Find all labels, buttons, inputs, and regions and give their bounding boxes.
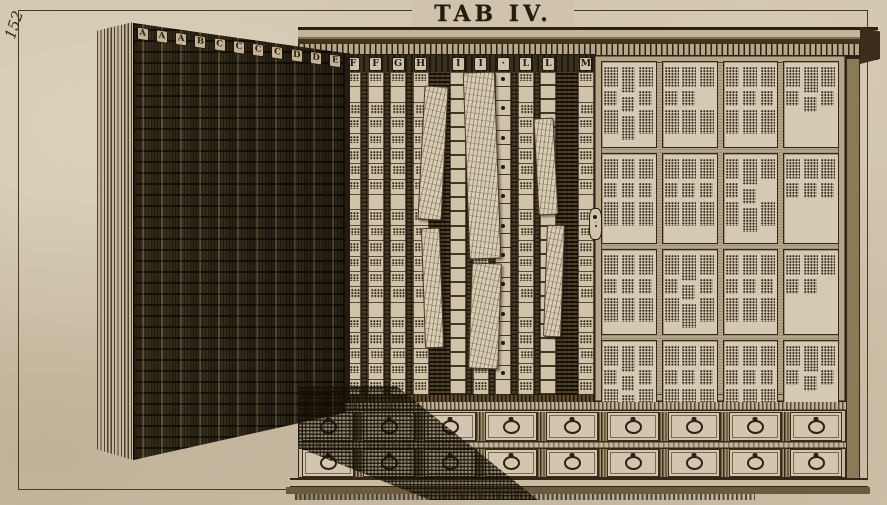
pane xyxy=(783,153,839,244)
pane-text-block xyxy=(726,183,739,198)
cabinet-interior: FFGHII·LLM xyxy=(345,55,594,402)
pane-text-column xyxy=(682,253,697,331)
cornice-right-return xyxy=(860,27,880,64)
pane-text-block xyxy=(622,202,636,226)
pane-text-column xyxy=(622,253,637,331)
drawer xyxy=(485,412,537,441)
pane-text-block xyxy=(761,91,774,106)
pane-text-block xyxy=(700,110,714,134)
pane-text-column xyxy=(604,65,619,144)
door-letter: C xyxy=(234,41,244,53)
door-letter-slot: E xyxy=(326,52,345,70)
pane-text-block xyxy=(604,279,617,294)
pane-text-column xyxy=(743,65,758,144)
pane-text-block xyxy=(726,159,740,179)
drawer-pull-icon xyxy=(503,420,520,434)
pane-text-column xyxy=(604,157,619,240)
pane-text-block xyxy=(622,97,635,112)
drawer xyxy=(546,449,598,477)
pane-text-block xyxy=(639,370,652,385)
cabinet-right-side xyxy=(846,58,860,482)
drawer-divider xyxy=(598,412,607,441)
drawer xyxy=(668,449,720,477)
drawer-pull-icon xyxy=(808,456,825,470)
door-letter-slot: A xyxy=(152,28,171,46)
pane-text-column xyxy=(786,65,801,144)
pane-text-column xyxy=(700,65,715,144)
pane-text-block xyxy=(700,159,714,179)
pane-text-column xyxy=(665,253,680,331)
pane-text-block xyxy=(639,279,652,294)
door-letter-slot: D xyxy=(287,47,306,65)
pane-text-block xyxy=(821,67,835,87)
door-letter-slot: C xyxy=(249,41,268,59)
pane-text-block xyxy=(700,67,714,87)
pane-text-block xyxy=(786,183,799,198)
drawer-pull-icon xyxy=(686,420,703,434)
door-letter: A xyxy=(157,30,167,42)
base-molding xyxy=(286,487,870,494)
drawer-pull-icon xyxy=(625,420,642,434)
pane xyxy=(662,153,718,244)
door-letter-slot: A xyxy=(172,30,191,48)
pane-text-column xyxy=(761,157,776,240)
drawer xyxy=(790,449,842,477)
pane-text-block xyxy=(804,255,818,275)
door-letter-slot: C xyxy=(229,39,248,57)
pane-text-block xyxy=(665,202,679,226)
pane-text-block xyxy=(604,67,618,87)
pane-text-block xyxy=(622,279,635,294)
pane-text-block xyxy=(665,346,679,366)
pane-text-block xyxy=(743,67,757,87)
pane-text-block xyxy=(786,91,799,106)
pane-grid xyxy=(601,61,839,396)
drawer-divider xyxy=(659,412,668,441)
pane-text-block xyxy=(804,346,818,372)
pane-text-column xyxy=(821,157,836,240)
pane-text-column xyxy=(682,157,697,240)
pane-text-column xyxy=(761,253,776,331)
door-letter-slot: B xyxy=(191,33,210,51)
pane-text-column xyxy=(665,157,680,240)
pane-text-column xyxy=(804,253,819,331)
specimen-sheet xyxy=(543,225,565,338)
pane-text-block xyxy=(622,298,636,322)
pane-text-block xyxy=(665,183,678,198)
pane-text-column xyxy=(804,157,819,240)
pane xyxy=(662,249,718,335)
pane-text-block xyxy=(622,183,635,198)
pane-text-block xyxy=(761,279,774,294)
title-plaque: TAB IV. xyxy=(412,0,574,27)
pane-text-block xyxy=(743,91,756,106)
pane-text-block xyxy=(804,67,818,93)
pane-text-block xyxy=(622,116,636,140)
pane-text-block xyxy=(761,202,775,226)
pane-text-block xyxy=(743,255,757,275)
door-letter: C xyxy=(272,47,282,59)
pane-text-column xyxy=(786,157,801,240)
pane-text-block xyxy=(743,298,757,322)
drawer xyxy=(607,412,659,441)
pane-text-block xyxy=(804,97,817,112)
pane-text-block xyxy=(682,110,696,134)
pane-text-block xyxy=(665,91,678,106)
pane-text-block xyxy=(700,183,713,198)
pane xyxy=(662,61,718,148)
pane-text-block xyxy=(639,110,653,134)
pane-text-column xyxy=(622,65,637,144)
drawer-pull-icon xyxy=(625,456,642,470)
door-letter: E xyxy=(330,55,340,67)
door-letter: D xyxy=(311,52,321,64)
door-letter: B xyxy=(195,36,205,48)
drawer xyxy=(790,412,842,441)
pane-text-block xyxy=(622,376,635,391)
pane-text-block xyxy=(761,67,775,87)
pane-text-block xyxy=(665,370,678,385)
pane-text-block xyxy=(700,298,714,322)
pane-text-block xyxy=(821,370,834,385)
pane-text-column xyxy=(761,65,776,144)
pane-text-column xyxy=(639,253,654,331)
pane-text-block xyxy=(761,159,775,179)
pane-text-block xyxy=(604,370,617,385)
pane-text-block xyxy=(665,279,678,294)
pane-text-block xyxy=(761,255,775,275)
door-letter: A xyxy=(176,33,186,45)
pane-text-block xyxy=(682,202,696,226)
drawer-divider xyxy=(598,449,607,477)
drawer-pull-icon xyxy=(564,456,581,470)
cornice-dentil-band xyxy=(298,44,878,55)
door-letter-slot: C xyxy=(268,44,287,62)
pane-text-block xyxy=(682,370,695,385)
pane-text-column xyxy=(804,65,819,144)
pane-text-block xyxy=(604,255,618,275)
specimen-sheet xyxy=(421,228,444,349)
base-plinth xyxy=(290,478,868,487)
pane-text-column xyxy=(786,253,801,331)
pane-text-block xyxy=(761,110,775,134)
door-letter: A xyxy=(138,28,148,40)
engraved-plate: 152 FFGHII·LLM AAABCCCCDDE TAB IV. xyxy=(0,0,887,505)
cornice-molding xyxy=(298,30,878,39)
drawer-divider xyxy=(537,412,546,441)
drawer-pull-icon xyxy=(747,456,764,470)
pane-text-block xyxy=(786,67,800,87)
pane-text-block xyxy=(743,370,756,385)
pane-text-block xyxy=(682,304,696,328)
pane-text-block xyxy=(821,91,834,106)
pane-text-block xyxy=(700,202,714,226)
pane xyxy=(601,61,657,148)
pane-text-block xyxy=(622,346,636,372)
pane xyxy=(723,153,779,244)
pane-text-column xyxy=(700,253,715,331)
pane-text-block xyxy=(639,202,653,226)
door-letter: C xyxy=(215,38,225,50)
pane-text-column xyxy=(682,65,697,144)
pane xyxy=(783,61,839,148)
drawer-pull-icon xyxy=(747,420,764,434)
pane-text-block xyxy=(639,91,652,106)
pane xyxy=(601,249,657,335)
pane-text-block xyxy=(743,110,757,134)
pane-text-block xyxy=(743,346,757,366)
pane-text-block xyxy=(786,255,800,275)
pane-text-block xyxy=(700,255,714,275)
pane-text-column xyxy=(622,157,637,240)
pane-text-block xyxy=(726,279,739,294)
pane-text-column xyxy=(821,253,836,331)
pane-text-block xyxy=(786,346,800,366)
pane-text-block xyxy=(786,159,800,179)
pane-text-column xyxy=(821,65,836,144)
pane-text-block xyxy=(665,159,679,179)
pane-text-block xyxy=(726,298,740,322)
plate-title: TAB IV. xyxy=(434,1,552,27)
pane-text-block xyxy=(622,255,636,275)
pane-text-block xyxy=(604,202,618,226)
door-letter-slot: D xyxy=(306,49,325,67)
drawer-pull-icon xyxy=(686,456,703,470)
drawer xyxy=(729,449,781,477)
pane-text-column xyxy=(726,253,741,331)
pane-text-block xyxy=(726,346,740,366)
pane-text-block xyxy=(761,298,775,322)
pane-text-block xyxy=(665,67,679,87)
drawer xyxy=(668,412,720,441)
pane-text-block xyxy=(726,255,740,275)
drawer-pull-icon xyxy=(808,420,825,434)
pane-text-block xyxy=(700,279,713,294)
pane-text-block xyxy=(682,255,696,281)
pane-text-block xyxy=(804,183,817,198)
pane-text-block xyxy=(726,110,740,134)
pane xyxy=(723,249,779,335)
specimen-sheet xyxy=(468,263,502,370)
drawer xyxy=(607,449,659,477)
door-hinge xyxy=(345,53,350,403)
pane-text-column xyxy=(639,65,654,144)
pane-text-block xyxy=(761,346,775,366)
pane-text-block xyxy=(665,298,679,322)
keyhole-escutcheon-icon xyxy=(589,208,602,240)
pane-text-block xyxy=(726,202,740,226)
drawer xyxy=(729,412,781,441)
drawer-divider xyxy=(476,412,485,441)
hanging-specimens xyxy=(345,55,594,402)
pane-text-block xyxy=(682,183,695,198)
pane-text-block xyxy=(604,298,618,322)
drawer-divider xyxy=(720,412,729,441)
pane-text-column xyxy=(604,253,619,331)
pane-text-block xyxy=(761,370,774,385)
door-letter-slot: C xyxy=(210,36,229,54)
pane-text-block xyxy=(743,208,757,232)
specimen-sheet xyxy=(463,71,502,259)
pane-text-block xyxy=(821,159,835,179)
specimen-sheet xyxy=(533,118,558,216)
door-letter: C xyxy=(253,44,263,56)
pane-text-column xyxy=(743,157,758,240)
pane-text-block xyxy=(682,285,695,300)
open-door-edge xyxy=(97,22,133,460)
pane-text-block xyxy=(604,110,618,134)
pane-text-block xyxy=(639,298,653,322)
pane-text-block xyxy=(682,346,696,366)
pane-text-block xyxy=(821,346,835,366)
pane-text-block xyxy=(639,255,653,275)
pane-text-block xyxy=(604,159,618,179)
pane-text-block xyxy=(726,370,739,385)
pane-text-block xyxy=(786,279,799,294)
pane-text-column xyxy=(726,65,741,144)
pane-text-column xyxy=(700,157,715,240)
pane-text-block xyxy=(682,67,696,87)
pane-text-block xyxy=(682,91,695,106)
pane-text-column xyxy=(639,157,654,240)
pane-text-block xyxy=(639,159,653,179)
pane-text-block xyxy=(821,183,834,198)
pane-text-block xyxy=(804,376,817,391)
pane-text-block xyxy=(622,67,636,93)
pane-text-block xyxy=(743,159,757,185)
pane-text-column xyxy=(665,65,680,144)
door-letter: D xyxy=(292,49,302,61)
pane-text-block xyxy=(604,183,617,198)
pane-text-block xyxy=(639,183,652,198)
drawer xyxy=(546,412,598,441)
pane-text-block xyxy=(743,279,756,294)
pane xyxy=(601,153,657,244)
drawer-divider xyxy=(781,412,790,441)
pane-text-block xyxy=(804,279,817,294)
drawer-divider xyxy=(781,449,790,477)
pane-text-block xyxy=(604,91,617,106)
specimen-sheet xyxy=(418,85,449,220)
pane xyxy=(723,61,779,148)
pane xyxy=(783,249,839,335)
drawer-divider xyxy=(659,449,668,477)
pane-text-block xyxy=(726,67,740,87)
pane-text-column xyxy=(726,157,741,240)
drawer-divider xyxy=(720,449,729,477)
pane-text-block xyxy=(665,255,679,275)
pane-text-block xyxy=(665,110,679,134)
pane-text-block xyxy=(639,346,653,366)
pane-text-block xyxy=(604,346,618,366)
pane-text-block xyxy=(821,255,835,275)
drawer-divider xyxy=(537,449,546,477)
pane-text-block xyxy=(786,370,799,385)
pane-text-block xyxy=(743,189,756,204)
drawer-pull-icon xyxy=(564,420,581,434)
pane-text-block xyxy=(700,346,714,366)
pane-text-block xyxy=(700,370,713,385)
pane-text-block xyxy=(804,159,818,179)
pane-text-block xyxy=(682,159,696,179)
pane-text-block xyxy=(726,91,739,106)
drawer-pull-icon xyxy=(503,456,520,470)
pane-text-block xyxy=(639,67,653,87)
door-letter-slot: A xyxy=(133,25,152,43)
pane-text-column xyxy=(743,253,758,331)
pane-text-block xyxy=(622,159,636,179)
